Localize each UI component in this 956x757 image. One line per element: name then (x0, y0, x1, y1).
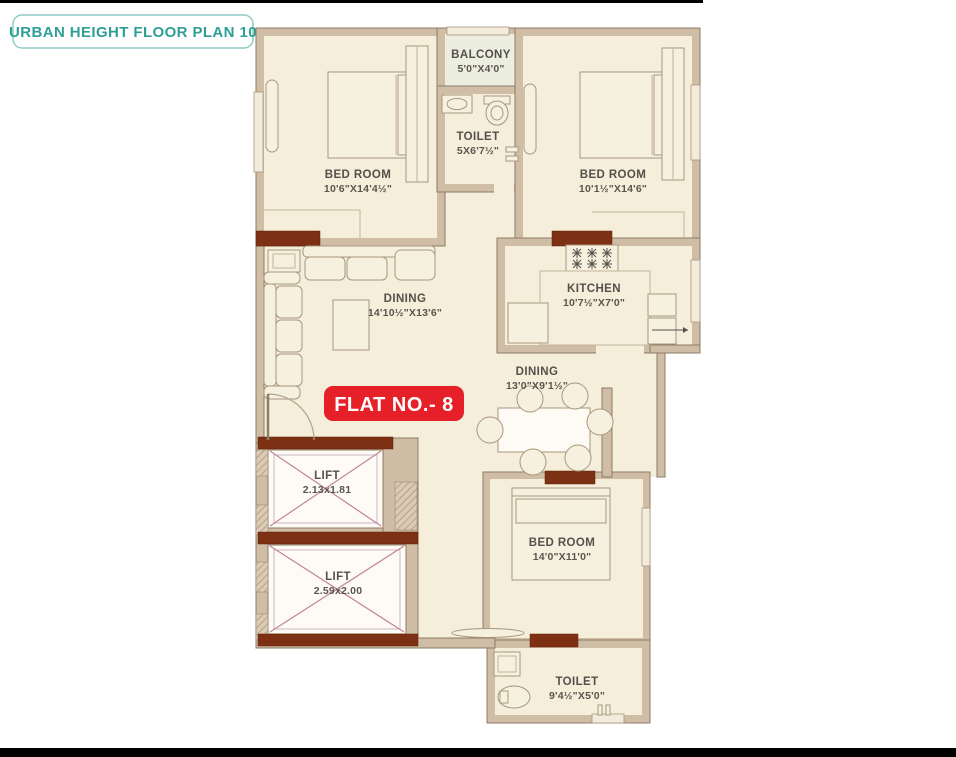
room-label: BED ROOM (529, 537, 595, 549)
room-label: KITCHEN (567, 283, 621, 295)
room-label: BALCONY (451, 49, 511, 61)
room-size-label: 5X6'7½" (457, 145, 499, 157)
room-label: TOILET (456, 131, 499, 143)
dining-chair-icon (477, 417, 503, 443)
room-label: DINING (384, 293, 427, 305)
door-lintel (258, 437, 393, 449)
room-balcony (437, 28, 523, 94)
room-label: LIFT (325, 571, 351, 583)
wc-icon (484, 96, 510, 125)
window-icon (254, 92, 263, 172)
shelf-icon (452, 629, 524, 638)
window-icon (691, 260, 700, 322)
side-table-icon (268, 250, 300, 272)
wc-icon (498, 686, 530, 708)
room-label: BED ROOM (580, 169, 646, 181)
coffee-table-icon (333, 300, 369, 350)
flat-number-badge: FLAT NO.- 8 (324, 386, 464, 421)
door-lintel (256, 231, 320, 246)
door-lintel (258, 634, 418, 646)
dining-chair-icon (520, 449, 546, 475)
room-size-label: 14'0"X11'0" (533, 551, 592, 563)
room-size-label: 2.59x2.00 (314, 585, 363, 597)
door-lintel (258, 532, 418, 544)
room-label: LIFT (314, 470, 340, 482)
room-size-label: 10'1½"X14'6" (579, 183, 647, 195)
stove-icon (566, 245, 618, 271)
kitchen-cabinet-icon (508, 303, 548, 343)
room-label: BED ROOM (325, 169, 391, 181)
sink-icon (494, 652, 520, 676)
door-lintel (530, 634, 578, 647)
wardrobe-icon (662, 48, 684, 180)
dining-chair-icon (587, 409, 613, 435)
room-label: DINING (516, 366, 559, 378)
door-lintel (552, 231, 612, 246)
room-size-label: 5'0"X4'0" (457, 63, 504, 75)
dining-chair-icon (565, 445, 591, 471)
top-border-line (0, 0, 703, 3)
window-panel-icon (266, 80, 278, 152)
floor-plan: URBAN HEIGHT FLOOR PLAN 10 (0, 0, 956, 757)
window-icon (447, 27, 509, 35)
window-icon (642, 508, 650, 566)
room-size-label: 2.13x1.81 (303, 484, 352, 496)
room-size-label: 10'6"X14'4½" (324, 183, 392, 195)
window-panel-icon (524, 84, 536, 154)
page-title: URBAN HEIGHT FLOOR PLAN 10 (9, 24, 257, 41)
room-size-label: 9'4½"X5'0" (549, 690, 605, 702)
bottom-border-bar (0, 748, 956, 757)
floor-plan-page: URBAN HEIGHT FLOOR PLAN 10 (0, 0, 956, 757)
window-icon (691, 85, 700, 160)
door-lintel (545, 471, 595, 484)
room-size-label: 14'10½"X13'6" (368, 307, 442, 319)
room-size-label: 13'0"X9'1½" (506, 380, 568, 392)
bed-icon (512, 488, 610, 580)
title-badge: URBAN HEIGHT FLOOR PLAN 10 (9, 15, 257, 48)
room-size-label: 10'7½"X7'0" (563, 297, 625, 309)
room-label: TOILET (555, 676, 598, 688)
sink-icon (442, 95, 472, 113)
wardrobe-icon (406, 46, 428, 182)
flat-number-label: FLAT NO.- 8 (334, 394, 454, 416)
